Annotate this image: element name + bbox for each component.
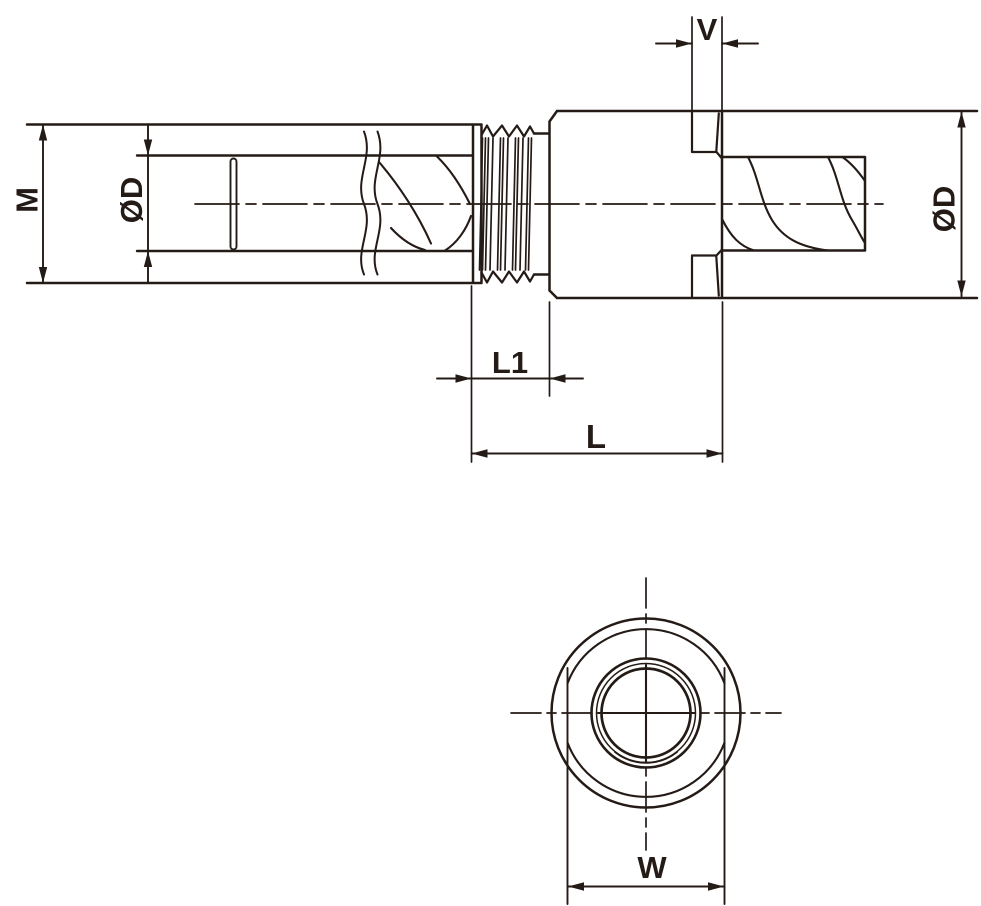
dim-l1-arrow-right xyxy=(456,374,472,382)
dim-d-left: ØD xyxy=(114,125,152,284)
break-lines xyxy=(361,132,380,275)
dim-v-arrow-left xyxy=(722,39,738,47)
dim-m-arrow-down xyxy=(39,267,47,283)
technical-drawing-page: M ØD V ØD L1 L xyxy=(0,0,981,906)
dim-label-w: W xyxy=(637,850,667,885)
dim-label-l1: L1 xyxy=(492,345,528,380)
dim-w-arrow-left xyxy=(568,882,584,890)
dim-l-arrow-right xyxy=(707,449,723,457)
dim-d-right-arrow-up xyxy=(957,112,965,128)
dim-w-arrow-right xyxy=(708,882,724,890)
dim-l: L xyxy=(472,302,723,462)
dim-m: M xyxy=(10,125,48,284)
dim-label-m: M xyxy=(10,187,45,213)
dim-d-right-arrow-down xyxy=(957,281,965,297)
dim-label-v: V xyxy=(697,12,718,47)
dim-w: W xyxy=(568,850,724,891)
dim-l1: L1 xyxy=(437,286,583,462)
dim-m-arrow-up xyxy=(39,125,47,141)
dim-l-arrow-left xyxy=(472,449,488,457)
dim-label-d-right: ØD xyxy=(927,186,962,233)
dim-label-l: L xyxy=(586,418,606,455)
side-view xyxy=(27,111,977,298)
dim-d-left-arrow-up xyxy=(144,251,152,267)
technical-drawing: M ØD V ØD L1 L xyxy=(0,0,981,906)
dim-label-d-left: ØD xyxy=(114,177,149,224)
dim-v: V xyxy=(656,12,758,111)
dim-d-right: ØD xyxy=(927,112,966,297)
dim-v-arrow-right xyxy=(676,39,692,47)
dim-l1-arrow-left xyxy=(550,374,566,382)
dim-d-left-arrow-down xyxy=(144,140,152,156)
